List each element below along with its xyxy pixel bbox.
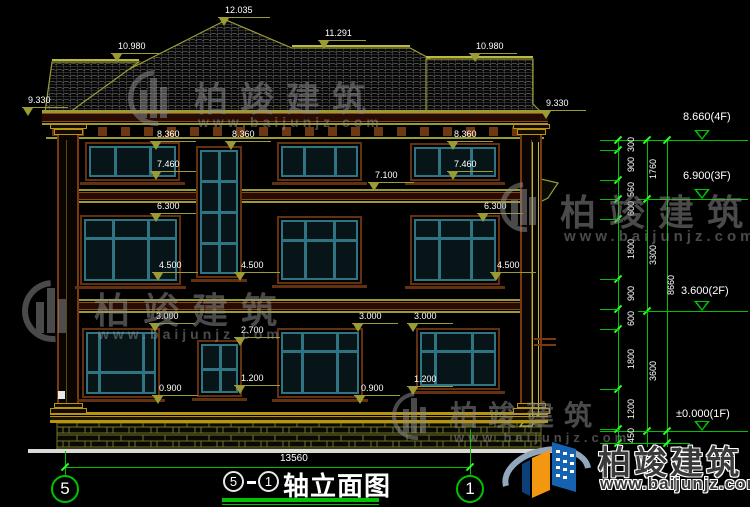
- dim-flag-triangle: [112, 54, 122, 62]
- window-mullion: [112, 219, 115, 281]
- elevation-dim-label: 7.460: [157, 159, 180, 169]
- pilaster-left-dot: [58, 391, 65, 399]
- dim-flag-triangle: [408, 387, 418, 395]
- dim-flag-triangle: [319, 41, 329, 49]
- dim-flag-triangle: [478, 214, 488, 222]
- window-sill: [77, 399, 165, 402]
- chain-dim-label: 1200: [623, 389, 639, 429]
- level-triangle-inner: [697, 190, 707, 197]
- title-axis-5: 5: [230, 474, 237, 489]
- window-transom: [86, 371, 156, 374]
- title-dash: [247, 481, 256, 484]
- level-label: ±0.000(1F): [676, 408, 730, 420]
- band-2f-bottom: [57, 311, 541, 313]
- title-axis-circle-5: 5: [223, 471, 244, 492]
- window-transom: [420, 350, 496, 353]
- dim-flag-triangle: [355, 396, 365, 404]
- window-mullion: [303, 146, 306, 177]
- window-mullion: [114, 146, 117, 177]
- dim-flag-triangle: [541, 111, 551, 119]
- band-2f: [57, 302, 541, 310]
- dim-flag-triangle: [491, 273, 501, 281]
- elevation-dim-label: 4.500: [159, 260, 182, 270]
- elevation-dim-label: 0.900: [361, 383, 384, 393]
- chain-dim-label: 1760: [645, 140, 661, 199]
- window-transom: [201, 368, 238, 371]
- chain-dim-label: 560: [623, 180, 639, 199]
- chain-dim-value: 900: [626, 157, 636, 172]
- brick-base: [57, 423, 541, 449]
- window-inner-frame: [281, 146, 358, 177]
- window-transom: [200, 211, 238, 214]
- chain-dim-label: 300: [623, 140, 639, 150]
- elevation-dim-label: 6.300: [484, 201, 507, 211]
- chain-dim-label: 1800: [623, 329, 639, 389]
- dim-flag-triangle: [353, 324, 363, 332]
- dim-flag-triangle: [151, 142, 161, 150]
- chain-dim-value: 900: [626, 286, 636, 301]
- axis-bubble-5: 5: [51, 475, 79, 503]
- dim-flag-triangle: [219, 18, 229, 26]
- dim-extension-line: [600, 219, 620, 220]
- chain-dim-label: 600: [623, 309, 639, 329]
- elevation-dim-label: 7.460: [454, 159, 477, 169]
- elevation-dim-label: 6.300: [157, 201, 180, 211]
- title-underline-thin: [222, 504, 379, 505]
- dim-flag-triangle: [448, 172, 458, 180]
- elevation-dim-label: 8.360: [157, 129, 180, 139]
- dim-flag-triangle: [153, 273, 163, 281]
- dim-extension-line: [600, 199, 620, 200]
- eave-fascia-band: [42, 113, 548, 122]
- grid-vline: [470, 429, 471, 476]
- window-inner-frame: [281, 220, 358, 280]
- chain-dim-label: 1800: [623, 219, 639, 279]
- axis-bubble-1-label: 1: [465, 479, 474, 499]
- chain-dim-label: 8660: [663, 140, 679, 431]
- window-mullion: [438, 219, 441, 281]
- chain-dim-label: 900: [623, 150, 639, 180]
- pilaster-left-base-lower: [50, 408, 87, 414]
- dim-flag-triangle: [150, 324, 160, 332]
- window-inner-frame: [414, 219, 496, 281]
- brand-logo-icon: [492, 428, 600, 502]
- chain-dim-value: 1800: [626, 349, 636, 369]
- level-label: 8.660(4F): [683, 111, 731, 123]
- window-mullion: [470, 219, 473, 281]
- title-axis-circle-1: 1: [258, 471, 279, 492]
- level-label: 3.600(2F): [681, 285, 729, 297]
- brand-url: www.baijunjz.com: [600, 474, 750, 494]
- elevation-dim-label: 3.000: [156, 311, 179, 321]
- elevation-dim-label: 8.360: [232, 129, 255, 139]
- window-mullion: [142, 332, 145, 394]
- elevation-dim-label: 10.980: [118, 41, 146, 51]
- elevation-dim-label: 3.000: [414, 311, 437, 321]
- level-triangle-inner: [697, 302, 707, 309]
- window-mullion: [98, 332, 101, 394]
- chain-dim-label: 3300: [645, 199, 661, 311]
- chain-dim-label: 3600: [645, 311, 661, 431]
- chain-dim-value: 600: [626, 201, 636, 216]
- overall-width-dim: 13560: [280, 454, 308, 464]
- dim-flag-triangle: [151, 172, 161, 180]
- band-3f-top: [57, 189, 541, 191]
- window-transom: [84, 237, 177, 240]
- dim-flag-triangle: [235, 273, 245, 281]
- elevation-dim-label: 9.330: [28, 95, 51, 105]
- elevation-dim-label: 1.200: [241, 373, 264, 383]
- dim-flag-triangle: [235, 386, 245, 394]
- window-mullion: [336, 332, 339, 394]
- elevation-dim-label: 10.980: [476, 41, 504, 51]
- window-mullion: [334, 146, 337, 177]
- title-underline-thick: [222, 498, 379, 502]
- chain-dim-value: 560: [626, 182, 636, 197]
- chain-dim-value: 1800: [626, 239, 636, 259]
- dim-flag-triangle: [369, 183, 379, 191]
- chain-dim-value: 8660: [666, 275, 676, 295]
- plinth-bottom-line: [50, 421, 548, 423]
- level-triangle-inner: [697, 131, 707, 138]
- elevation-dim-label: 8.360: [454, 129, 477, 139]
- dim-flag-triangle: [408, 324, 418, 332]
- dim-flag-triangle: [153, 396, 163, 404]
- chain-dim-value: 600: [626, 311, 636, 326]
- chain-dim-value: 1760: [648, 159, 658, 179]
- elevation-dim-label: 7.100: [375, 170, 398, 180]
- dim-extension-line: [600, 279, 620, 280]
- dim-flag-triangle: [151, 214, 161, 222]
- downspout-bracket: [534, 338, 556, 346]
- dim-extension-line: [600, 329, 620, 330]
- dim-flag-triangle: [235, 338, 245, 346]
- dim-flag-triangle: [470, 54, 480, 62]
- window-transom: [200, 180, 238, 183]
- chain-dim-label: 600: [623, 199, 639, 219]
- window-mullion: [147, 219, 150, 281]
- window-transom: [414, 237, 496, 240]
- window-sill: [405, 182, 505, 185]
- axis-bubble-1: 1: [456, 475, 484, 503]
- grid-vline: [618, 140, 619, 447]
- window-sill: [405, 286, 505, 289]
- pilaster-left-shaft: [57, 135, 79, 407]
- elevation-dim-label: 9.330: [546, 98, 569, 108]
- window-mullion: [333, 220, 336, 280]
- window-sill: [272, 182, 367, 185]
- elevation-dim-label: 4.500: [241, 260, 264, 270]
- dim-flag-triangle: [448, 142, 458, 150]
- elevation-dim-label: 3.000: [359, 311, 382, 321]
- window-sill: [272, 285, 367, 288]
- elevation-dim-label: 11.291: [325, 28, 352, 38]
- window-mullion: [438, 147, 441, 177]
- window-inner-frame: [281, 332, 359, 394]
- window-sill: [411, 391, 505, 394]
- eave-mid-line: [42, 123, 548, 125]
- cad-elevation-screenshot: { "drawing": { "title": "轴立面图", "axis_le…: [0, 0, 750, 507]
- dim-extension-line: [600, 389, 620, 390]
- dim-extension-line: [600, 180, 620, 181]
- elevation-dim-label: 12.035: [225, 5, 253, 15]
- chain-dim-label: 900: [623, 279, 639, 309]
- window-sill: [272, 399, 368, 402]
- elevation-dim-label: 4.500: [497, 260, 520, 270]
- downspout-pipe: [532, 142, 539, 416]
- window-sill: [192, 398, 247, 401]
- window-mullion: [301, 332, 304, 394]
- window-sill: [75, 286, 186, 289]
- window-transom: [281, 350, 359, 353]
- band-3f-bottom: [57, 201, 541, 203]
- window-sill: [80, 182, 185, 185]
- window-inner-frame: [86, 332, 156, 394]
- dim-flag-triangle: [23, 108, 33, 116]
- band-3f: [57, 192, 541, 200]
- elevation-dim-label: 2.700: [241, 325, 264, 335]
- elevation-dim-label: 1.200: [414, 374, 437, 384]
- axis-bubble-5-label: 5: [60, 479, 69, 499]
- window-mullion: [471, 332, 474, 386]
- chain-dim-value: 1200: [626, 399, 636, 419]
- dim-extension-line: [600, 150, 620, 151]
- chain-dim-value: 3600: [648, 361, 658, 381]
- band-2f-top: [57, 299, 541, 301]
- plinth-top-line: [50, 412, 548, 415]
- window-transom: [281, 239, 358, 242]
- grid-hline: [65, 467, 470, 468]
- main-roof: [45, 20, 541, 112]
- dim-flag-triangle: [226, 142, 236, 150]
- brand-logo: 柏竣建筑 www.baijunjz.com: [492, 428, 750, 504]
- window-mullion: [304, 220, 307, 280]
- pilaster-left-inner-line: [66, 140, 67, 405]
- dim-extension-line: [600, 309, 620, 310]
- elevation-dim-label: 0.900: [159, 383, 182, 393]
- chain-dim-value: 3300: [648, 245, 658, 265]
- window-transom: [200, 242, 238, 245]
- title-axis-1: 1: [265, 474, 272, 489]
- level-label: 6.900(3F): [683, 170, 731, 182]
